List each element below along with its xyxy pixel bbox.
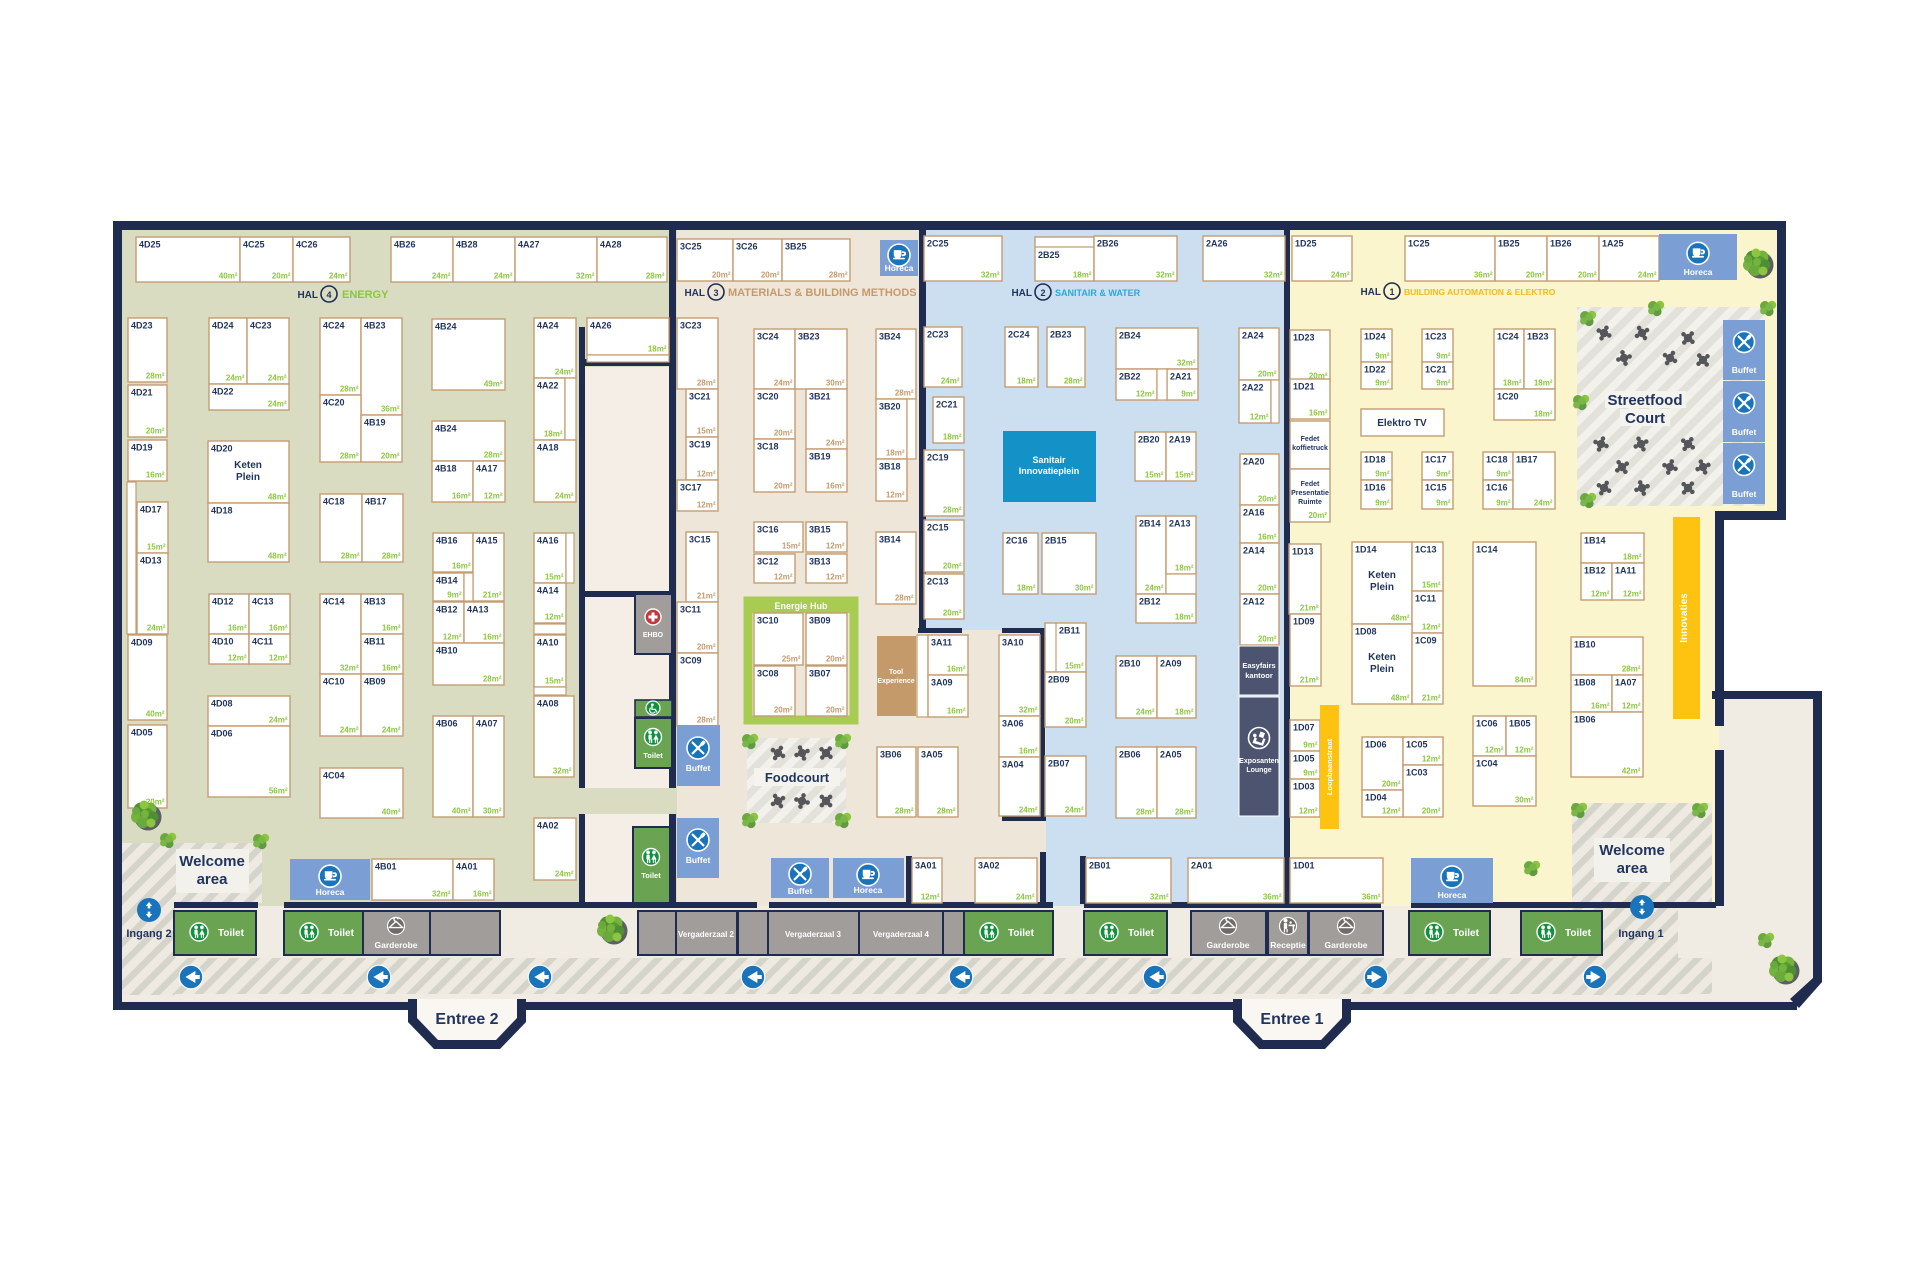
svg-text:18m²: 18m² (1175, 613, 1194, 622)
svg-text:3C25: 3C25 (680, 242, 702, 252)
svg-text:32m²: 32m² (340, 664, 359, 673)
svg-text:2B15: 2B15 (1045, 536, 1067, 546)
svg-text:24m²: 24m² (432, 272, 451, 281)
svg-text:2C25: 2C25 (927, 239, 949, 249)
svg-text:32m²: 32m² (1156, 271, 1175, 280)
svg-text:1B26: 1B26 (1550, 239, 1572, 249)
svg-text:2B14: 2B14 (1139, 519, 1161, 529)
svg-text:20m²: 20m² (712, 271, 731, 280)
svg-text:4B16: 4B16 (436, 536, 458, 546)
svg-text:2A12: 2A12 (1243, 597, 1265, 607)
svg-text:MATERIALS & BUILDING METHODS: MATERIALS & BUILDING METHODS (728, 287, 917, 299)
svg-text:40m²: 40m² (146, 710, 165, 719)
svg-text:4B23: 4B23 (364, 321, 386, 331)
svg-text:12m²: 12m² (484, 492, 503, 501)
svg-text:2A22: 2A22 (1242, 383, 1264, 393)
svg-text:2C19: 2C19 (927, 453, 949, 463)
svg-text:9m²: 9m² (1375, 352, 1390, 361)
svg-text:1C05: 1C05 (1406, 740, 1428, 750)
svg-text:Horeca: Horeca (316, 887, 345, 897)
svg-text:40m²: 40m² (452, 807, 471, 816)
svg-text:4B13: 4B13 (364, 597, 386, 607)
svg-text:Keten: Keten (1368, 652, 1396, 663)
svg-text:15m²: 15m² (697, 427, 716, 436)
svg-text:48m²: 48m² (1391, 694, 1410, 703)
svg-text:1C21: 1C21 (1425, 365, 1447, 375)
svg-text:24m²: 24m² (1019, 806, 1038, 815)
svg-text:4A26: 4A26 (590, 321, 612, 331)
svg-text:4B12: 4B12 (436, 605, 458, 615)
svg-text:24m²: 24m² (1065, 806, 1084, 815)
svg-text:15m²: 15m² (545, 677, 564, 686)
svg-text:4D08: 4D08 (211, 699, 233, 709)
svg-text:4D22: 4D22 (212, 387, 234, 397)
svg-text:1C14: 1C14 (1476, 545, 1498, 555)
svg-text:4D12: 4D12 (212, 597, 234, 607)
svg-text:4A27: 4A27 (518, 240, 540, 250)
svg-text:4D21: 4D21 (131, 388, 153, 398)
svg-text:18m²: 18m² (648, 345, 667, 354)
svg-text:4A15: 4A15 (476, 536, 498, 546)
svg-text:9m²: 9m² (447, 591, 462, 600)
svg-text:28m²: 28m² (895, 389, 914, 398)
svg-text:1B05: 1B05 (1509, 719, 1531, 729)
svg-text:20m²: 20m² (1258, 635, 1277, 644)
svg-text:3C16: 3C16 (757, 525, 779, 535)
svg-text:20m²: 20m² (774, 429, 793, 438)
svg-text:15m²: 15m² (782, 542, 801, 551)
svg-text:1D16: 1D16 (1364, 483, 1386, 493)
svg-text:25m²: 25m² (782, 655, 801, 664)
svg-text:21m²: 21m² (1300, 604, 1319, 613)
svg-text:3B15: 3B15 (809, 525, 831, 535)
svg-text:12m²: 12m² (269, 654, 288, 663)
svg-text:9m²: 9m² (1436, 499, 1451, 508)
svg-text:28m²: 28m² (146, 372, 165, 381)
svg-text:12m²: 12m² (774, 573, 793, 582)
svg-text:16m²: 16m² (269, 624, 288, 633)
svg-text:32m²: 32m² (1264, 271, 1283, 280)
svg-text:28m²: 28m² (1622, 665, 1641, 674)
svg-text:12m²: 12m² (826, 573, 845, 582)
svg-text:1D13: 1D13 (1292, 547, 1314, 557)
svg-text:24m²: 24m² (1016, 893, 1035, 902)
svg-text:4B10: 4B10 (436, 646, 458, 656)
svg-text:30m²: 30m² (826, 379, 845, 388)
svg-text:Keten: Keten (1368, 570, 1396, 581)
svg-text:4A14: 4A14 (537, 586, 559, 596)
svg-text:2A09: 2A09 (1160, 659, 1182, 669)
svg-text:2A19: 2A19 (1169, 435, 1191, 445)
svg-text:Garderobe: Garderobe (1325, 940, 1368, 950)
svg-text:2B25: 2B25 (1038, 250, 1060, 260)
svg-text:4B14: 4B14 (436, 576, 458, 586)
svg-text:1A07: 1A07 (1615, 678, 1637, 688)
svg-text:4B09: 4B09 (364, 677, 386, 687)
svg-text:4A22: 4A22 (537, 381, 559, 391)
svg-text:28m²: 28m² (646, 272, 665, 281)
svg-text:4A24: 4A24 (537, 321, 559, 331)
svg-text:15m²: 15m² (1422, 581, 1441, 590)
svg-text:Buffet: Buffet (686, 763, 711, 773)
svg-text:9m²: 9m² (1375, 499, 1390, 508)
svg-text:1B17: 1B17 (1516, 455, 1538, 465)
svg-text:Toilet: Toilet (1453, 928, 1480, 939)
svg-text:Energie Hub: Energie Hub (774, 601, 828, 611)
svg-text:20m²: 20m² (1258, 495, 1277, 504)
svg-text:12m²: 12m² (228, 654, 247, 663)
svg-text:1D04: 1D04 (1365, 793, 1387, 803)
svg-text:Horeca: Horeca (854, 885, 883, 895)
svg-text:18m²: 18m² (1623, 553, 1642, 562)
svg-text:32m²: 32m² (1177, 359, 1196, 368)
svg-text:28m²: 28m² (382, 552, 401, 561)
svg-text:Welcome: Welcome (1599, 842, 1665, 859)
svg-text:3A04: 3A04 (1002, 760, 1024, 770)
svg-text:32m²: 32m² (981, 271, 1000, 280)
svg-text:21m²: 21m² (483, 591, 502, 600)
svg-text:36m²: 36m² (381, 405, 400, 414)
svg-text:1D24: 1D24 (1364, 332, 1386, 342)
svg-text:Lounge: Lounge (1246, 767, 1271, 774)
svg-text:28m²: 28m² (829, 271, 848, 280)
svg-text:2B20: 2B20 (1138, 435, 1160, 445)
svg-text:20m²: 20m² (826, 655, 845, 664)
svg-text:24m²: 24m² (1331, 271, 1350, 280)
svg-text:3B06: 3B06 (880, 750, 902, 760)
svg-text:4D05: 4D05 (131, 728, 153, 738)
svg-text:BUILDING AUTOMATION & ELEKTRO: BUILDING AUTOMATION & ELEKTRO (1404, 287, 1556, 297)
svg-text:28m²: 28m² (340, 452, 359, 461)
svg-text:2A01: 2A01 (1191, 861, 1213, 871)
svg-text:18m²: 18m² (1017, 584, 1036, 593)
svg-text:4C14: 4C14 (323, 597, 345, 607)
svg-text:4C11: 4C11 (252, 637, 273, 647)
svg-text:1B06: 1B06 (1574, 715, 1596, 725)
svg-text:9m²: 9m² (1436, 379, 1451, 388)
svg-text:1C18: 1C18 (1486, 455, 1508, 465)
svg-text:32m²: 32m² (1150, 893, 1169, 902)
svg-text:Horeca: Horeca (1438, 890, 1467, 900)
svg-text:15m²: 15m² (1175, 471, 1194, 480)
svg-text:1D03: 1D03 (1293, 782, 1315, 792)
svg-text:Fedet: Fedet (1301, 481, 1320, 488)
svg-text:Plein: Plein (1370, 664, 1394, 675)
svg-text:12m²: 12m² (1299, 807, 1318, 816)
svg-text:16m²: 16m² (1019, 747, 1038, 756)
svg-text:3B14: 3B14 (879, 535, 901, 545)
svg-text:1C13: 1C13 (1415, 545, 1437, 555)
svg-text:16m²: 16m² (1309, 409, 1328, 418)
svg-text:12m²: 12m² (443, 633, 462, 642)
svg-text:18m²: 18m² (1175, 564, 1194, 573)
svg-text:Ingang 1: Ingang 1 (1618, 928, 1663, 940)
svg-text:18m²: 18m² (1175, 708, 1194, 717)
svg-text:Toilet: Toilet (1128, 928, 1155, 939)
svg-text:24m²: 24m² (147, 624, 166, 633)
svg-text:49m²: 49m² (484, 380, 503, 389)
svg-text:1B23: 1B23 (1527, 332, 1549, 342)
svg-text:4B19: 4B19 (364, 418, 386, 428)
svg-text:16m²: 16m² (826, 482, 845, 491)
svg-text:4C24: 4C24 (323, 321, 345, 331)
svg-text:Ingang 2: Ingang 2 (126, 928, 171, 940)
svg-text:3C09: 3C09 (680, 656, 702, 666)
svg-text:36m²: 36m² (1263, 893, 1282, 902)
svg-text:9m²: 9m² (1375, 379, 1390, 388)
svg-text:2B06: 2B06 (1119, 750, 1141, 760)
svg-text:Horeca: Horeca (1684, 267, 1713, 277)
svg-text:20m²: 20m² (774, 706, 793, 715)
svg-text:Vergaderzaal 2: Vergaderzaal 2 (678, 930, 735, 939)
svg-text:4B06: 4B06 (436, 719, 458, 729)
svg-text:1C16: 1C16 (1486, 483, 1508, 493)
svg-text:3B24: 3B24 (879, 332, 901, 342)
svg-text:4D10: 4D10 (212, 637, 234, 647)
svg-text:2A13: 2A13 (1169, 519, 1191, 529)
svg-text:28m²: 28m² (483, 675, 502, 684)
svg-text:Keten: Keten (234, 460, 262, 471)
svg-text:area: area (1617, 860, 1649, 877)
svg-text:20m²: 20m² (826, 706, 845, 715)
svg-text:HAL: HAL (297, 290, 318, 301)
svg-text:Toilet: Toilet (1008, 928, 1035, 939)
svg-text:4B28: 4B28 (456, 240, 478, 250)
svg-text:16m²: 16m² (473, 890, 492, 899)
svg-text:15m²: 15m² (1145, 471, 1164, 480)
svg-text:1A25: 1A25 (1602, 239, 1624, 249)
svg-text:Buffet: Buffet (1732, 489, 1757, 499)
svg-text:2C13: 2C13 (927, 577, 949, 587)
svg-text:1B10: 1B10 (1574, 640, 1596, 650)
svg-text:Entree 2: Entree 2 (435, 1011, 498, 1028)
svg-text:20m²: 20m² (1308, 511, 1327, 520)
svg-text:2A14: 2A14 (1243, 546, 1265, 556)
svg-text:18m²: 18m² (1073, 271, 1092, 280)
svg-text:20m²: 20m² (774, 482, 793, 491)
svg-text:Exposanten: Exposanten (1239, 758, 1279, 765)
svg-text:4D24: 4D24 (212, 321, 234, 331)
svg-text:24m²: 24m² (826, 439, 845, 448)
svg-text:2A21: 2A21 (1170, 372, 1192, 382)
svg-text:Entree 1: Entree 1 (1260, 1011, 1323, 1028)
svg-text:1D07: 1D07 (1293, 723, 1315, 733)
svg-text:Horeca: Horeca (885, 263, 914, 273)
svg-text:1C09: 1C09 (1415, 636, 1437, 646)
svg-text:Court: Court (1625, 410, 1665, 427)
svg-text:3: 3 (713, 288, 718, 298)
svg-text:4C20: 4C20 (323, 398, 345, 408)
svg-text:20m²: 20m² (1258, 370, 1277, 379)
svg-text:24m²: 24m² (1638, 271, 1657, 280)
svg-text:1C23: 1C23 (1425, 332, 1447, 342)
svg-text:18m²: 18m² (886, 449, 905, 458)
svg-text:2A24: 2A24 (1242, 331, 1264, 341)
svg-text:9m²: 9m² (1303, 741, 1318, 750)
svg-text:4D25: 4D25 (139, 240, 161, 250)
svg-text:Innovatieplein: Innovatieplein (1019, 466, 1080, 476)
svg-text:Ruimte: Ruimte (1298, 499, 1322, 506)
svg-text:4A17: 4A17 (476, 464, 498, 474)
svg-text:2B11: 2B11 (1059, 626, 1080, 636)
svg-text:30m²: 30m² (483, 807, 502, 816)
svg-text:1B25: 1B25 (1498, 239, 1520, 249)
svg-text:9m²: 9m² (1375, 470, 1390, 479)
svg-text:3B18: 3B18 (879, 462, 901, 472)
svg-text:Elektro TV: Elektro TV (1377, 418, 1427, 429)
svg-text:SANITAIR & WATER: SANITAIR & WATER (1055, 288, 1141, 298)
svg-text:4D06: 4D06 (211, 729, 233, 739)
svg-text:20m²: 20m² (697, 643, 716, 652)
svg-text:1C15: 1C15 (1425, 483, 1447, 493)
svg-text:4C26: 4C26 (296, 240, 318, 250)
svg-text:28m²: 28m² (895, 807, 914, 816)
svg-text:21m²: 21m² (1422, 694, 1441, 703)
svg-text:3C26: 3C26 (736, 242, 758, 252)
svg-text:3C12: 3C12 (757, 557, 779, 567)
svg-text:21m²: 21m² (1300, 676, 1319, 685)
svg-text:Welcome: Welcome (179, 853, 245, 870)
svg-text:18m²: 18m² (1017, 377, 1036, 386)
svg-text:area: area (197, 871, 229, 888)
svg-text:Innovaties: Innovaties (1679, 593, 1690, 643)
svg-text:48m²: 48m² (268, 552, 287, 561)
svg-text:24m²: 24m² (494, 272, 513, 281)
svg-text:3C20: 3C20 (757, 392, 779, 402)
svg-text:Vergaderzaal 4: Vergaderzaal 4 (873, 930, 930, 939)
svg-text:18m²: 18m² (1534, 410, 1553, 419)
svg-text:24m²: 24m² (1534, 499, 1553, 508)
svg-text:1D06: 1D06 (1365, 740, 1387, 750)
svg-text:4D19: 4D19 (131, 443, 153, 453)
svg-text:2C24: 2C24 (1008, 330, 1030, 340)
svg-text:1C17: 1C17 (1425, 455, 1447, 465)
svg-text:4A10: 4A10 (537, 638, 559, 648)
svg-text:2B10: 2B10 (1119, 659, 1141, 669)
svg-text:20m²: 20m² (272, 272, 291, 281)
svg-text:12m²: 12m² (1485, 746, 1504, 755)
svg-text:3C15: 3C15 (689, 535, 711, 545)
svg-text:24m²: 24m² (774, 379, 793, 388)
svg-text:24m²: 24m² (226, 374, 245, 383)
svg-text:Toilet: Toilet (328, 928, 355, 939)
svg-text:1C25: 1C25 (1408, 239, 1430, 249)
svg-text:4A16: 4A16 (537, 536, 559, 546)
svg-text:koffietruck: koffietruck (1292, 445, 1328, 452)
svg-text:16m²: 16m² (382, 664, 401, 673)
svg-text:3A05: 3A05 (921, 750, 943, 760)
svg-text:32m²: 32m² (1019, 706, 1038, 715)
svg-text:Buffet: Buffet (686, 855, 711, 865)
svg-text:HAL: HAL (1360, 287, 1381, 298)
svg-text:16m²: 16m² (228, 624, 247, 633)
svg-text:21m²: 21m² (697, 592, 716, 601)
svg-text:4A18: 4A18 (537, 443, 559, 453)
svg-text:2C23: 2C23 (927, 330, 949, 340)
svg-text:3C21: 3C21 (689, 392, 711, 402)
svg-text:28m²: 28m² (895, 594, 914, 603)
svg-text:24m²: 24m² (1145, 584, 1164, 593)
svg-text:32m²: 32m² (553, 767, 572, 776)
svg-text:4C25: 4C25 (243, 240, 265, 250)
svg-text:2B22: 2B22 (1119, 372, 1141, 382)
svg-text:12m²: 12m² (697, 470, 716, 479)
svg-text:1A11: 1A11 (1615, 566, 1636, 576)
svg-text:28m²: 28m² (943, 506, 962, 515)
svg-text:4D09: 4D09 (131, 638, 153, 648)
svg-text:Plein: Plein (1370, 582, 1394, 593)
svg-text:1B08: 1B08 (1574, 678, 1596, 688)
svg-text:12m²: 12m² (921, 893, 940, 902)
svg-text:2A05: 2A05 (1160, 750, 1182, 760)
svg-text:1D25: 1D25 (1295, 239, 1317, 249)
svg-text:Buffet: Buffet (1732, 427, 1757, 437)
svg-text:12m²: 12m² (1591, 590, 1610, 599)
svg-text:20m²: 20m² (1258, 584, 1277, 593)
svg-text:15m²: 15m² (147, 543, 166, 552)
svg-text:12m²: 12m² (1382, 807, 1401, 816)
svg-text:24m²: 24m² (268, 400, 287, 409)
svg-text:28m²: 28m² (1175, 808, 1194, 817)
svg-text:9m²: 9m² (1436, 352, 1451, 361)
svg-text:12m²: 12m² (826, 542, 845, 551)
svg-text:20m²: 20m² (1578, 271, 1597, 280)
svg-text:3B13: 3B13 (809, 557, 831, 567)
svg-text:1D22: 1D22 (1364, 365, 1386, 375)
svg-text:3B25: 3B25 (785, 242, 807, 252)
svg-text:Buffet: Buffet (788, 886, 813, 896)
svg-text:20m²: 20m² (1422, 807, 1441, 816)
svg-text:3C10: 3C10 (757, 616, 779, 626)
svg-text:Plein: Plein (236, 472, 260, 483)
svg-text:2A26: 2A26 (1206, 239, 1228, 249)
svg-text:Toilet: Toilet (1565, 928, 1592, 939)
svg-text:1: 1 (1389, 287, 1394, 297)
svg-text:Tool: Tool (889, 669, 903, 676)
svg-text:1C24: 1C24 (1497, 332, 1519, 342)
svg-text:4A13: 4A13 (467, 605, 489, 615)
svg-text:16m²: 16m² (146, 471, 165, 480)
svg-text:3B07: 3B07 (809, 669, 831, 679)
svg-text:3C19: 3C19 (689, 440, 711, 450)
svg-text:16m²: 16m² (1591, 702, 1610, 711)
svg-text:4C13: 4C13 (252, 597, 274, 607)
svg-text:4D20: 4D20 (211, 444, 233, 454)
svg-text:18m²: 18m² (943, 433, 962, 442)
svg-text:4D23: 4D23 (131, 321, 153, 331)
svg-text:2C15: 2C15 (927, 523, 949, 533)
svg-text:2B09: 2B09 (1048, 675, 1070, 685)
svg-text:56m²: 56m² (269, 787, 288, 796)
svg-text:28m²: 28m² (1064, 377, 1083, 386)
svg-text:12m²: 12m² (1422, 755, 1441, 764)
svg-text:1C04: 1C04 (1476, 759, 1498, 769)
svg-text:30m²: 30m² (1075, 584, 1094, 593)
svg-text:4B11: 4B11 (364, 637, 385, 647)
svg-text:1D14: 1D14 (1355, 545, 1377, 555)
svg-text:HAL: HAL (1011, 288, 1032, 299)
svg-text:28m²: 28m² (340, 385, 359, 394)
svg-text:24m²: 24m² (555, 870, 574, 879)
svg-text:36m²: 36m² (1474, 271, 1493, 280)
svg-text:28m²: 28m² (1136, 808, 1155, 817)
svg-text:24m²: 24m² (555, 492, 574, 501)
svg-text:2B23: 2B23 (1050, 330, 1072, 340)
svg-text:1C06: 1C06 (1476, 719, 1498, 729)
svg-text:1D05: 1D05 (1293, 754, 1315, 764)
svg-text:30m²: 30m² (1515, 796, 1534, 805)
svg-text:Presentatie: Presentatie (1291, 490, 1329, 497)
